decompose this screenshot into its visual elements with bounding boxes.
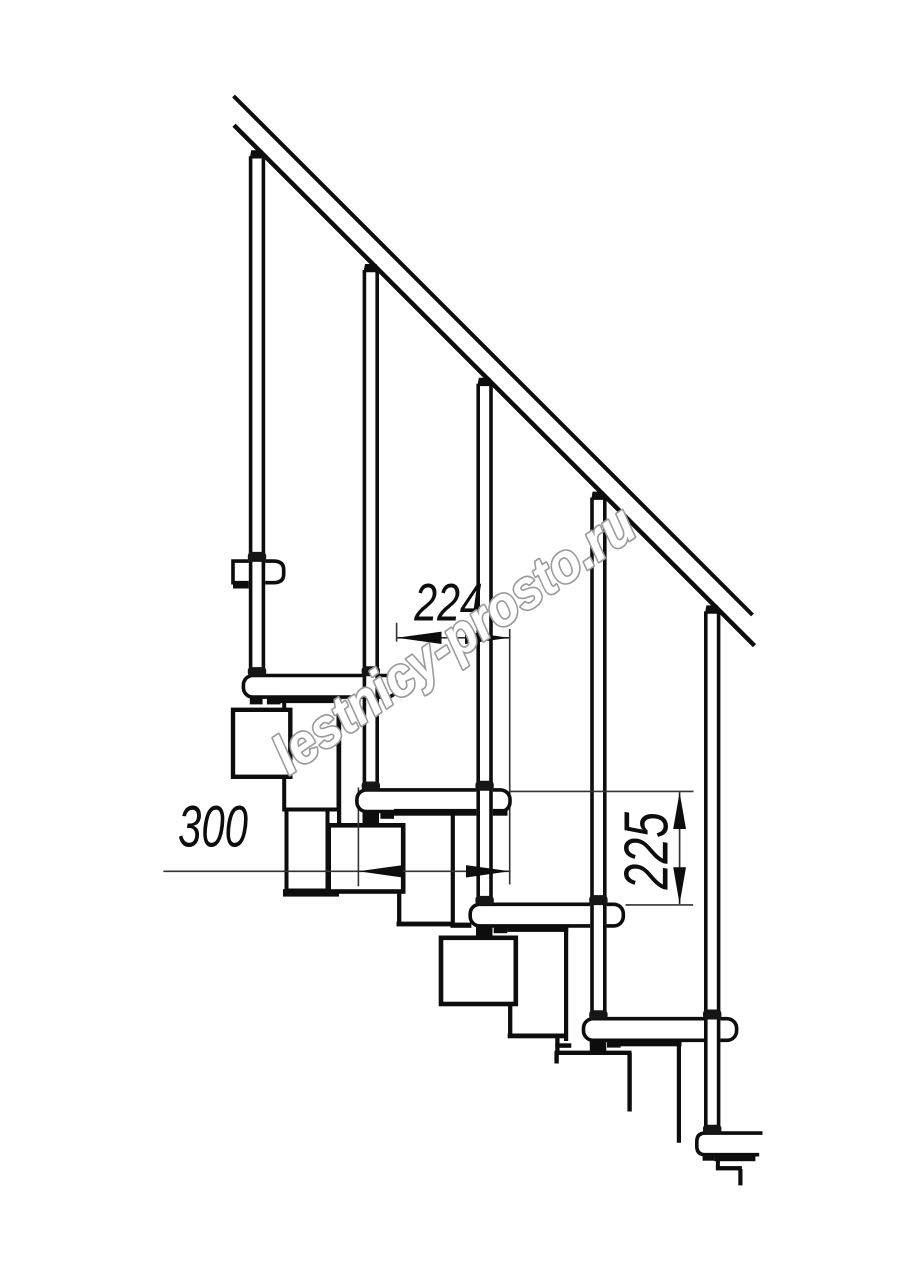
svg-text:225: 225 <box>613 812 682 891</box>
svg-text:300: 300 <box>178 795 248 860</box>
